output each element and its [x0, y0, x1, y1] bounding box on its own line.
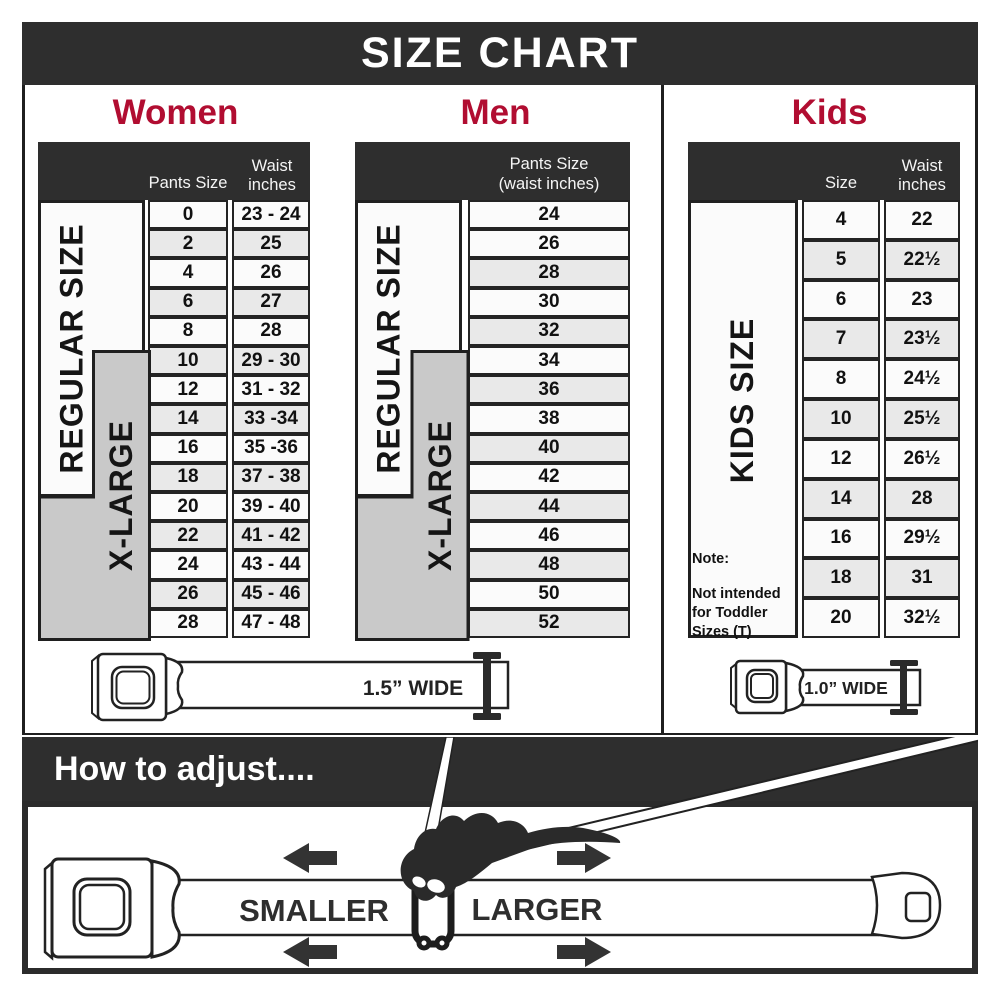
seatbelt-buckle-icon — [731, 661, 803, 713]
table-cell: 26 — [468, 229, 630, 258]
women-xlarge-label-wrap: X-LARGE — [92, 350, 151, 641]
table-cell: 14 — [802, 479, 880, 519]
women-size-column: 0 2 4 6 8 10 12 14 16 18 20 22 24 26 28 — [148, 200, 228, 638]
panel-left-border — [22, 85, 25, 735]
table-cell: 32½ — [884, 598, 960, 638]
table-cell: 45 - 46 — [232, 580, 310, 609]
table-cell: 12 — [802, 439, 880, 479]
men-col-header-line1: Pants Size — [468, 155, 630, 174]
table-cell: 41 - 42 — [232, 521, 310, 550]
table-cell: 52 — [468, 609, 630, 638]
table-cell: 7 — [802, 319, 880, 359]
kids-note: Note: Not intended for Toddler Sizes (T) — [692, 550, 796, 643]
kids-belt-illustration: 1.0” WIDE — [728, 655, 938, 723]
table-cell: 12 — [148, 375, 228, 404]
arrow-left-icon — [283, 937, 337, 967]
table-cell: 23 - 24 — [232, 200, 310, 229]
larger-label: LARGER — [472, 892, 603, 927]
table-cell: 23½ — [884, 319, 960, 359]
kids-col2-header-line2: inches — [884, 176, 960, 195]
table-cell: 5 — [802, 240, 880, 280]
women-xlarge-label: X-LARGE — [103, 420, 140, 571]
table-cell: 20 — [148, 492, 228, 521]
table-cell: 32 — [468, 317, 630, 346]
table-cell: 6 — [148, 288, 228, 317]
table-cell: 37 - 38 — [232, 463, 310, 492]
table-cell: 31 - 32 — [232, 375, 310, 404]
size-chart-page: SIZE CHART Women Men Kids Pants Size Wai… — [0, 0, 1000, 1000]
kids-col2-header-line1: Waist — [884, 157, 960, 176]
table-cell: 24½ — [884, 359, 960, 399]
women-col2-header-line1: Waist — [232, 157, 312, 176]
table-cell: 8 — [148, 317, 228, 346]
table-cell: 50 — [468, 580, 630, 609]
kids-size-label: KIDS SIZE — [725, 317, 762, 482]
table-cell: 22 — [884, 200, 960, 240]
men-xlarge-label-wrap: X-LARGE — [410, 350, 470, 641]
table-cell: 24 — [148, 550, 228, 579]
adult-width-label: 1.5” WIDE — [363, 677, 463, 700]
seatbelt-buckle-icon — [45, 859, 179, 958]
table-cell: 18 — [802, 558, 880, 598]
men-size-column: 24 26 28 30 32 34 36 38 40 42 44 46 48 5… — [468, 200, 630, 638]
adult-belt-illustration: 1.5” WIDE — [88, 648, 518, 728]
table-cell: 33 -34 — [232, 404, 310, 433]
women-table-header: Pants Size Waist inches — [38, 142, 310, 200]
table-cell: 36 — [468, 375, 630, 404]
kids-waist-column: 22 22½ 23 23½ 24½ 25½ 26½ 28 29½ 31 32½ — [884, 200, 960, 638]
table-cell: 35 -36 — [232, 434, 310, 463]
table-cell: 30 — [468, 288, 630, 317]
table-cell: 38 — [468, 404, 630, 433]
panel-right-border — [975, 85, 978, 735]
table-cell: 18 — [148, 463, 228, 492]
men-xlarge-label: X-LARGE — [422, 420, 459, 571]
panel-bottom-border — [22, 733, 978, 735]
women-heading: Women — [58, 93, 293, 133]
table-cell: 16 — [148, 434, 228, 463]
table-cell: 14 — [148, 404, 228, 433]
kids-table-header: Size Waist inches — [688, 142, 960, 200]
table-cell: 26½ — [884, 439, 960, 479]
table-cell: 22½ — [884, 240, 960, 280]
kids-width-label: 1.0” WIDE — [804, 678, 888, 698]
men-col-header-line2: (waist inches) — [468, 175, 630, 194]
table-cell: 25 — [232, 229, 310, 258]
table-cell: 31 — [884, 558, 960, 598]
table-cell: 23 — [884, 280, 960, 320]
table-cell: 42 — [468, 463, 630, 492]
table-cell: 4 — [148, 258, 228, 287]
belt-tip — [872, 873, 940, 938]
table-cell: 26 — [148, 580, 228, 609]
table-cell: 29 - 30 — [232, 346, 310, 375]
table-cell: 40 — [468, 434, 630, 463]
table-cell: 20 — [802, 598, 880, 638]
table-cell: 48 — [468, 550, 630, 579]
table-cell: 28 — [884, 479, 960, 519]
men-regular-size-label: REGULAR SIZE — [371, 223, 408, 473]
panel-divider — [661, 85, 664, 735]
table-cell: 16 — [802, 519, 880, 559]
table-cell: 10 — [148, 346, 228, 375]
table-cell: 25½ — [884, 399, 960, 439]
kids-size-column: 4 5 6 7 8 10 12 14 16 18 20 — [802, 200, 880, 638]
seatbelt-buckle-icon — [92, 654, 182, 720]
kids-size-label-wrap: KIDS SIZE — [688, 200, 798, 600]
table-cell: 4 — [802, 200, 880, 240]
women-regular-size-label: REGULAR SIZE — [54, 223, 91, 473]
arrow-right-icon — [557, 843, 611, 873]
adjust-belt-illustration: SMALLER LARGER — [22, 737, 978, 974]
women-col2-header-line2: inches — [232, 176, 312, 195]
table-cell: 47 - 48 — [232, 609, 310, 638]
note-line: Note: — [692, 550, 796, 569]
smaller-label: SMALLER — [239, 893, 389, 928]
table-cell: 27 — [232, 288, 310, 317]
table-cell: 28 — [148, 609, 228, 638]
page-title: SIZE CHART — [22, 22, 978, 85]
table-cell: 22 — [148, 521, 228, 550]
kids-heading: Kids — [712, 93, 947, 133]
women-col1-header: Pants Size — [146, 174, 230, 193]
table-cell: 2 — [148, 229, 228, 258]
arrow-left-icon — [283, 843, 337, 873]
table-cell: 28 — [232, 317, 310, 346]
table-cell: 34 — [468, 346, 630, 375]
table-cell: 43 - 44 — [232, 550, 310, 579]
arrow-right-icon — [557, 937, 611, 967]
table-cell: 28 — [468, 258, 630, 287]
kids-col1-header: Size — [802, 174, 880, 193]
table-cell: 46 — [468, 521, 630, 550]
table-cell: 24 — [468, 200, 630, 229]
men-table-header: Pants Size (waist inches) — [355, 142, 630, 200]
women-waist-column: 23 - 24 25 26 27 28 29 - 30 31 - 32 33 -… — [232, 200, 310, 638]
table-cell: 8 — [802, 359, 880, 399]
table-cell: 39 - 40 — [232, 492, 310, 521]
table-cell: 26 — [232, 258, 310, 287]
table-cell: 29½ — [884, 519, 960, 559]
table-cell: 6 — [802, 280, 880, 320]
men-heading: Men — [378, 93, 613, 133]
table-cell: 0 — [148, 200, 228, 229]
table-cell: 10 — [802, 399, 880, 439]
table-cell: 44 — [468, 492, 630, 521]
